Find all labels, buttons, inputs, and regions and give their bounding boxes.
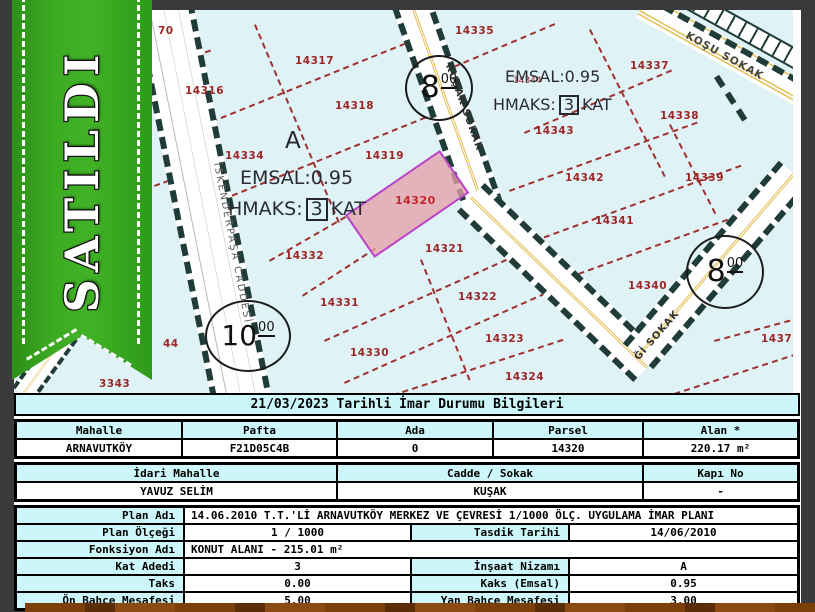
parcel-number: 14337	[630, 60, 669, 72]
road-width-value: 8	[707, 257, 726, 287]
row-value2: 0.95	[569, 575, 798, 592]
value-parsel: 14320	[493, 439, 643, 457]
road-width-decimal: 00	[258, 320, 275, 337]
parcel-number: 3343	[99, 378, 130, 390]
parcel-number: 14338	[660, 110, 699, 122]
parcel-number: 14341	[595, 215, 634, 227]
row-label: Kat Adedi	[16, 558, 184, 575]
col-header-pafta: Pafta	[182, 421, 337, 439]
row-value: 14.06.2010 T.T.'Lİ ARNAVUTKÖY MERKEZ VE …	[184, 507, 798, 524]
imar-durumu-table: 21/03/2023 Tarihli İmar Durumu Bilgileri…	[14, 393, 800, 611]
parcel-number: 14373	[761, 333, 793, 345]
road-width-decimal: 00	[727, 256, 744, 273]
col-header-alan: Alan *	[643, 421, 798, 439]
parcel-boundary-line	[674, 344, 793, 393]
row-value: KONUT ALANI - 215.01 m²	[184, 541, 798, 558]
parcel-number: 14335	[455, 25, 494, 37]
parcel-number: 14334	[225, 150, 264, 162]
road-width-value: 8	[421, 73, 440, 103]
value-pafta: F21D05C4B	[182, 439, 337, 457]
value-cadde-sokak: KUŞAK	[337, 482, 643, 500]
row-value: 3	[184, 558, 411, 575]
zone-hmaks-label: HMAKS:3KAT	[228, 198, 366, 221]
col-header-kapi-no: Kapı No	[643, 464, 798, 482]
parcel-number: 14342	[565, 172, 604, 184]
hmaks-prefix: HMAKS:	[493, 95, 556, 114]
value-mahalle: ARNAVUTKÖY	[16, 439, 182, 457]
parcel-number: 14330	[350, 347, 389, 359]
parcel-number: 14343	[535, 125, 574, 137]
row-value2: 14/06/2010	[569, 524, 798, 541]
row-label: Plan Adı	[16, 507, 184, 524]
col-header-parsel: Parsel	[493, 421, 643, 439]
col-header-cadde-sokak: Cadde / Sokak	[337, 464, 643, 482]
row-value: 0.00	[184, 575, 411, 592]
address-grid: İdari Mahalle Cadde / Sokak Kapı No YAVU…	[14, 462, 800, 502]
zone-emsal-label: EMSAL:0.95	[505, 67, 600, 86]
row-value2: A	[569, 558, 798, 575]
road-width-circle: 800	[686, 235, 764, 309]
parcel-number: 14317	[295, 55, 334, 67]
parcel-number: 14340	[628, 280, 667, 292]
ribbon-stitch-right	[137, 0, 140, 344]
value-idari-mahalle: YAVUZ SELİM	[16, 482, 337, 500]
parcel-number: 14332	[285, 250, 324, 262]
parcel-number: 14318	[335, 100, 374, 112]
parcel-number: 14321	[425, 243, 464, 255]
zone-hmaks-label: HMAKS:3KAT	[493, 95, 612, 115]
row-label2: Tasdik Tarihi	[411, 524, 569, 541]
road-edge-dash	[714, 75, 747, 122]
sold-ribbon-label: SATILDI	[55, 48, 109, 313]
plan-details-grid: Plan Adı 14.06.2010 T.T.'Lİ ARNAVUTKÖY M…	[14, 505, 800, 611]
table-title: 21/03/2023 Tarihli İmar Durumu Bilgileri	[14, 393, 800, 416]
row-value: 1 / 1000	[184, 524, 411, 541]
row-label2: Kaks (Emsal)	[411, 575, 569, 592]
ribbon-stitch-left	[22, 0, 25, 344]
row-label2: İnşaat Nizamı	[411, 558, 569, 575]
hmaks-suffix: KAT	[331, 198, 366, 220]
parcel-number: 14323	[485, 333, 524, 345]
col-header-mahalle: Mahalle	[16, 421, 182, 439]
block-letter: A	[285, 128, 301, 154]
bottom-edge	[25, 603, 815, 612]
highlight-parcel-number: 14320	[395, 194, 436, 207]
value-kapi-no: -	[643, 482, 798, 500]
hmaks-floor-count: 3	[559, 95, 579, 115]
parcel-number: 14339	[685, 172, 724, 184]
row-label: Plan Ölçeği	[16, 524, 184, 541]
sold-ribbon: SATILDI	[12, 0, 152, 392]
listing-image: 14344 14320 800 800 1000 EMSAL:0.95 HMAK…	[0, 0, 815, 612]
value-alan: 220.17 m²	[643, 439, 798, 457]
parcel-number: 14316	[185, 85, 224, 97]
parcel-number: 14319	[365, 150, 404, 162]
parcel-number: 44	[163, 338, 179, 350]
hmaks-floor-count: 3	[306, 198, 328, 221]
value-ada: 0	[337, 439, 493, 457]
road-width-value: 10	[221, 322, 257, 350]
row-label: Taks	[16, 575, 184, 592]
col-header-idari-mahalle: İdari Mahalle	[16, 464, 337, 482]
parcel-number: 14322	[458, 291, 497, 303]
zone-emsal-label: EMSAL:0.95	[240, 167, 353, 189]
parcel-number: 14324	[505, 371, 544, 383]
parcel-number: 70	[158, 25, 174, 37]
parcel-boundary-line	[669, 124, 716, 214]
col-header-ada: Ada	[337, 421, 493, 439]
hmaks-suffix: KAT	[582, 95, 612, 114]
row-label: Fonksiyon Adı	[16, 541, 184, 558]
parcel-id-grid: Mahalle Pafta Ada Parsel Alan * ARNAVUTK…	[14, 419, 800, 459]
hmaks-prefix: HMAKS:	[228, 198, 303, 220]
parcel-number: 14331	[320, 297, 359, 309]
